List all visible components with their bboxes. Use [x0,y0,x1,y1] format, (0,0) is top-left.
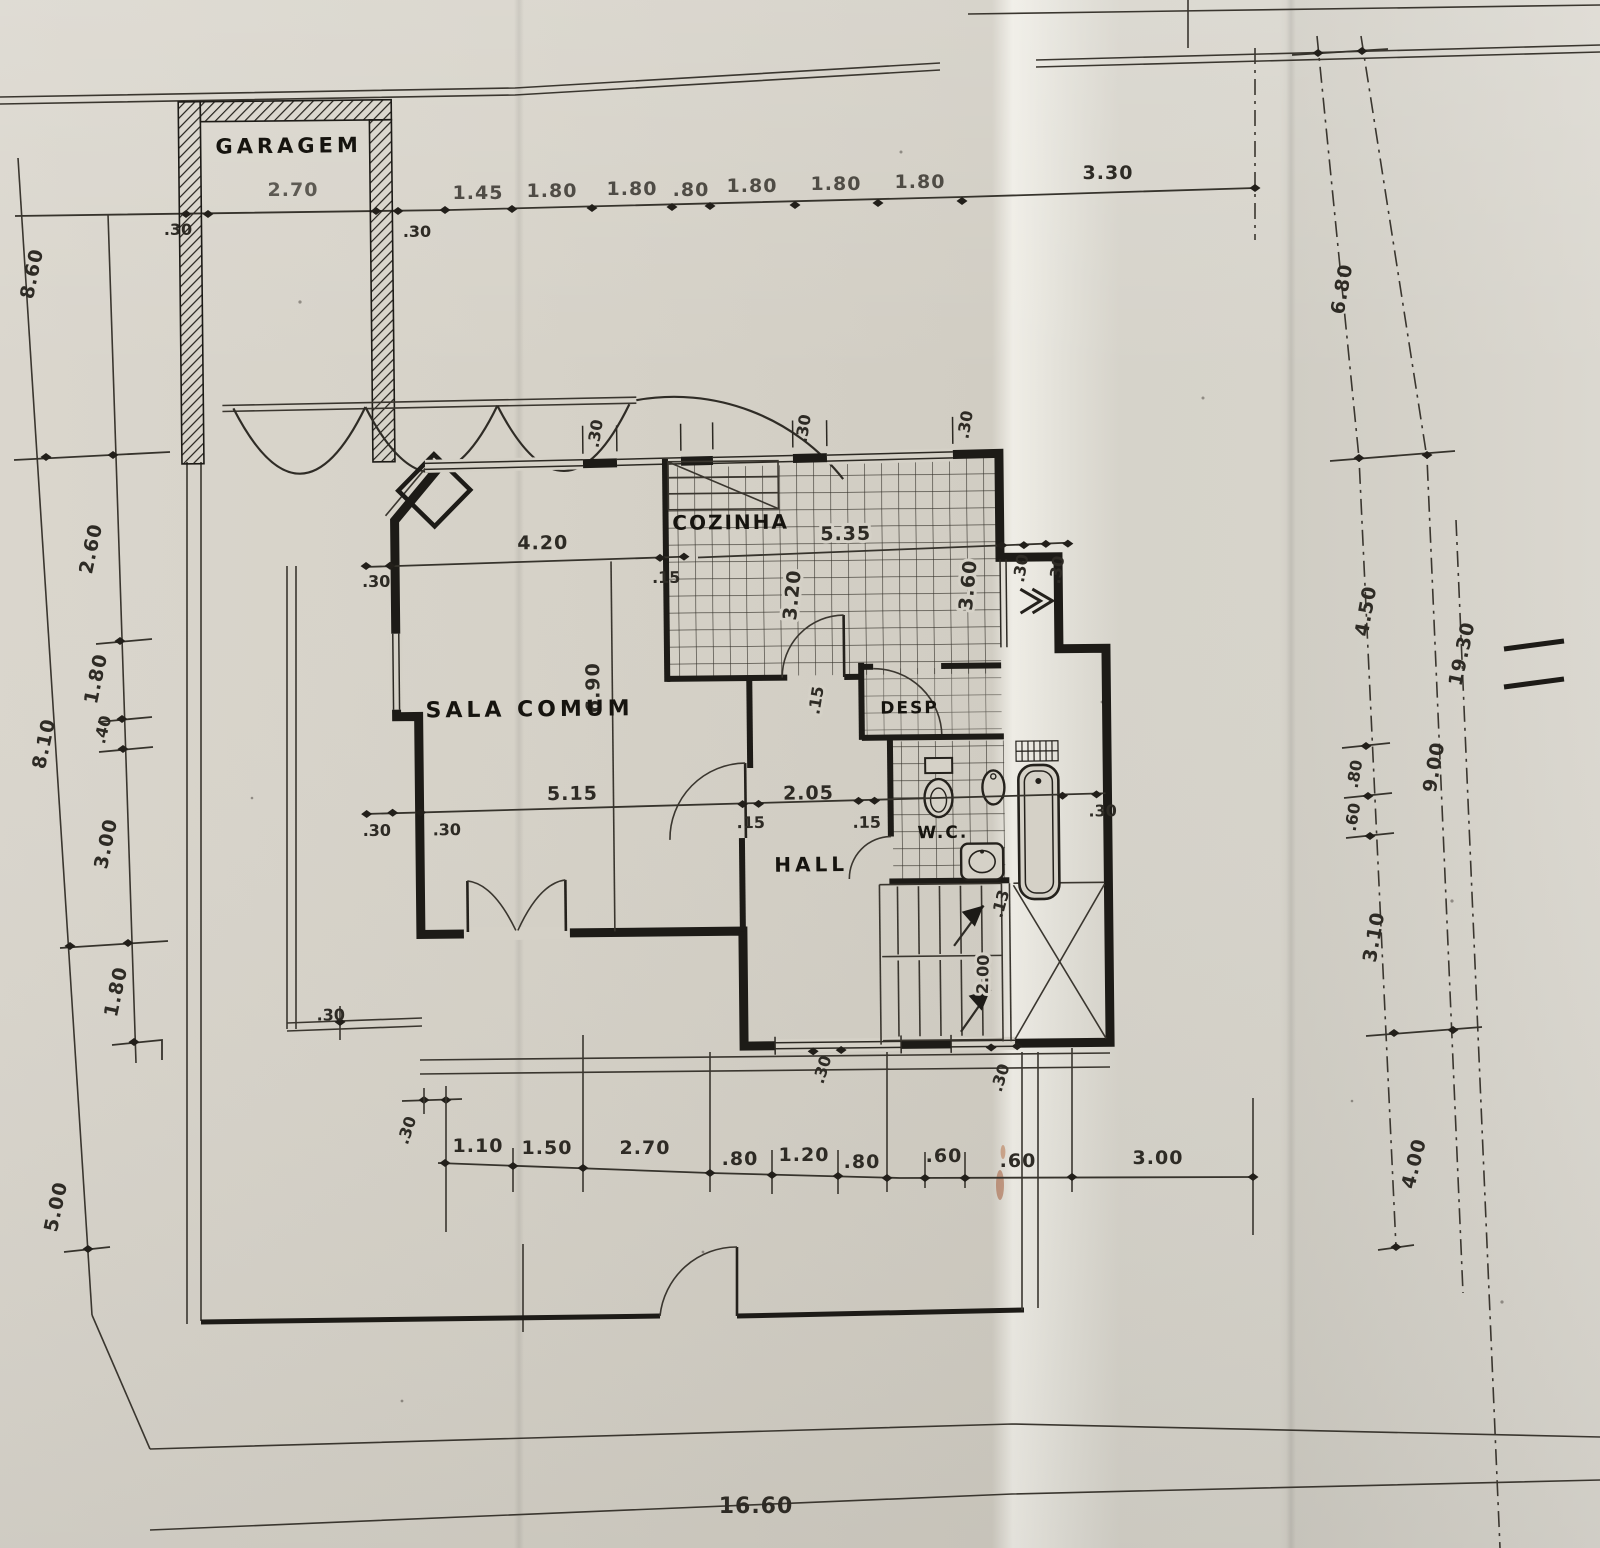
bidet [982,770,1004,804]
desp-label: DESP [880,698,939,719]
dim-top-5: 1.80 [727,175,778,197]
dim-mid-5: 2.05 [783,782,834,805]
dim-top-1: 1.45 [453,182,504,204]
floor-plan-scan: .30 2.70 .30 1.45 1.80 1.80 .80 1.80 1.8… [0,0,1600,1548]
dim-mid-2: .30 [433,820,462,839]
dim-bottom-5: 1.20 [779,1144,830,1166]
dim-top-6: 1.80 [811,173,862,195]
dim-mid-6: .15 [852,813,881,832]
sink [961,843,1003,879]
dim-bottom-total: 16.60 [719,1494,794,1519]
kitchen-tiles [667,455,1001,676]
dim-top-7: 1.80 [895,171,946,193]
dim-mid-3: 5.15 [547,783,598,806]
dim-top-3: 1.80 [607,178,658,200]
dim-bottom-8: .60 [1000,1150,1037,1172]
dim-bottom-2: 1.50 [522,1137,573,1159]
toilet-tank [925,758,952,773]
dim-sala-wall-right: .15 [652,568,681,587]
dim-bottom-1: 1.10 [453,1135,504,1157]
dim-top-4: .80 [673,179,710,201]
cozinha-label: COZINHA [672,510,789,535]
dim-bottom-3: 2.70 [620,1137,671,1159]
dim-top-wall-right: .30 [403,222,431,241]
sala-comum-label: SALA COMUM [425,696,633,723]
dim-bottom-6: .80 [844,1151,881,1173]
dim-top-2: 1.80 [527,180,578,202]
dim-mid-7: .30 [1088,801,1117,820]
dim-terrace-wall: .30 [316,1005,345,1024]
dim-sala-wall-left: .30 [362,572,391,591]
dim-top-8: 3.30 [1083,162,1134,184]
dim-mid-1: .30 [363,821,392,840]
kitchen-door-leaf [844,615,845,677]
dim-bottom-9: 3.00 [1133,1147,1184,1169]
dim-kitchen-width: 5.35 [820,523,871,546]
hall-label: HALL [774,852,848,877]
dim-bottom-4: .80 [722,1148,759,1170]
garage-label: GARAGEM [215,133,362,159]
dim-mid-4: .15 [736,813,765,832]
wc-label: W.C. [917,823,968,844]
dim-sala-width: 4.20 [517,532,568,555]
west-window [393,634,400,710]
dim-bottom-7: .60 [926,1145,963,1167]
dim-stair-width: 2.00 [973,954,993,994]
dim-garage-width: 2.70 [268,179,319,201]
